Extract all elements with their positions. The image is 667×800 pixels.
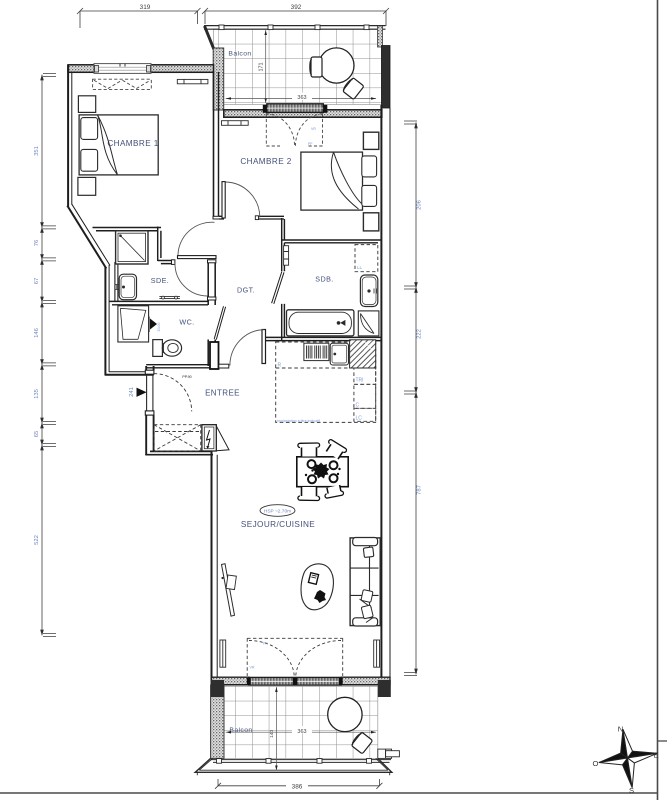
svg-text:65: 65: [34, 430, 40, 437]
svg-text:351: 351: [34, 146, 40, 156]
svg-text:76: 76: [34, 239, 40, 246]
svg-text:30x30: 30x30: [157, 322, 161, 331]
svg-text:CHAMBRE 2: CHAMBRE 2: [240, 157, 291, 166]
svg-text:67: 67: [34, 278, 40, 285]
svg-text:N: N: [618, 725, 623, 734]
svg-text:787: 787: [417, 485, 423, 495]
svg-text:Balcon: Balcon: [228, 51, 251, 58]
svg-text:319: 319: [140, 4, 151, 11]
svg-text:ENTREE: ENTREE: [205, 389, 240, 398]
svg-text:363: 363: [297, 729, 306, 735]
svg-text:SEJOUR/CUISINE: SEJOUR/CUISINE: [241, 520, 315, 529]
svg-text:Balcon: Balcon: [229, 727, 252, 734]
svg-text:E: E: [653, 751, 658, 760]
svg-text:522: 522: [34, 535, 40, 545]
svg-text:TRI: TRI: [356, 378, 364, 384]
svg-text:146: 146: [34, 327, 40, 338]
svg-text:222: 222: [417, 329, 423, 339]
svg-text:SDE.: SDE.: [151, 276, 169, 285]
svg-text:R: R: [278, 363, 282, 369]
svg-text:VR: VR: [250, 666, 255, 670]
svg-text:363: 363: [297, 95, 306, 101]
svg-text:PF: PF: [308, 142, 313, 146]
svg-text:241: 241: [129, 387, 135, 397]
svg-text:386: 386: [292, 783, 303, 790]
svg-text:C: C: [356, 403, 360, 409]
svg-text:Implantation à titre indicatif: Implantation à titre indicatif: [277, 419, 320, 423]
svg-text:LL: LL: [357, 265, 363, 270]
svg-text:VR: VR: [311, 127, 316, 131]
svg-text:PF: PF: [263, 642, 268, 646]
svg-text:206: 206: [417, 199, 423, 210]
svg-text:LC: LC: [356, 416, 363, 422]
svg-text:PP.90: PP.90: [182, 375, 191, 379]
svg-text:140: 140: [269, 730, 274, 738]
svg-text:O: O: [593, 759, 599, 768]
svg-text:135: 135: [34, 388, 40, 399]
svg-text:CHAMBRE 1: CHAMBRE 1: [107, 139, 158, 148]
svg-text:DGT.: DGT.: [237, 286, 255, 295]
svg-text:392: 392: [291, 4, 302, 11]
svg-text:HSP ~2.70m: HSP ~2.70m: [264, 509, 291, 515]
svg-text:S: S: [629, 786, 634, 795]
svg-text:SDB.: SDB.: [315, 275, 333, 284]
svg-text:WC.: WC.: [179, 318, 194, 327]
svg-text:171: 171: [259, 63, 265, 72]
